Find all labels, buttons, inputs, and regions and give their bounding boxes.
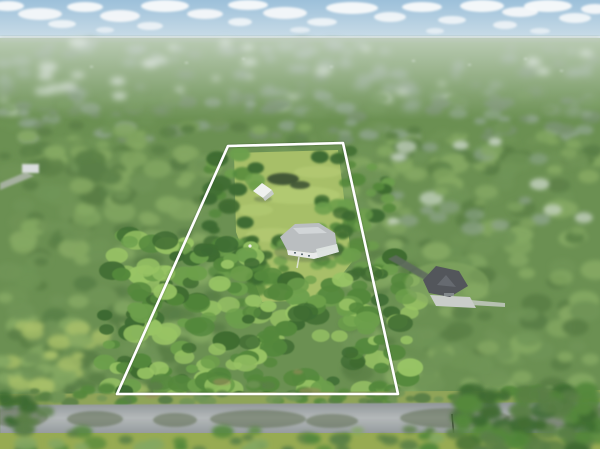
road-shadow xyxy=(306,414,358,428)
foliage-blob xyxy=(158,395,173,404)
cloud-puff xyxy=(137,22,163,30)
foliage-blob xyxy=(19,145,41,159)
horizon-haze xyxy=(0,36,600,120)
foliage-blob xyxy=(201,244,219,256)
foliage-blob xyxy=(25,321,43,332)
foliage-blob xyxy=(406,396,416,402)
foliage-blob xyxy=(44,145,66,159)
foliage-blob xyxy=(502,146,514,153)
foliage-blob xyxy=(547,178,570,193)
well-pad-dot xyxy=(248,244,251,247)
foliage-blob xyxy=(74,150,106,171)
foliage-blob xyxy=(496,390,511,400)
foliage-blob xyxy=(539,396,564,413)
foliage-blob xyxy=(91,239,111,252)
cloud-puff xyxy=(18,8,62,20)
foliage-blob xyxy=(352,281,368,292)
foliage-blob xyxy=(373,183,385,191)
foliage-blob xyxy=(97,310,112,321)
foliage-blob xyxy=(332,272,353,287)
foliage-blob xyxy=(357,322,375,335)
foliage-blob xyxy=(247,381,260,389)
foliage-blob xyxy=(7,302,35,320)
cloud-puff xyxy=(187,9,223,19)
foliage-blob xyxy=(407,126,421,134)
foliage-blob xyxy=(342,347,359,359)
foliage-blob xyxy=(247,162,264,174)
foliage-blob xyxy=(519,219,536,229)
foliage-blob xyxy=(474,199,486,206)
foliage-blob xyxy=(480,143,503,157)
foliage-blob xyxy=(381,194,395,204)
lawn-streak xyxy=(237,204,273,216)
foliage-blob xyxy=(119,436,133,445)
foliage-blob xyxy=(270,132,282,139)
foliage-blob xyxy=(434,187,449,196)
foliage-blob xyxy=(465,209,485,221)
foliage-blob xyxy=(439,201,460,214)
foliage-blob xyxy=(221,260,234,269)
foliage-blob xyxy=(329,433,350,446)
foliage-blob xyxy=(461,221,484,235)
foliage-blob xyxy=(562,319,589,336)
foliage-blob xyxy=(388,314,413,332)
foliage-blob xyxy=(506,431,530,448)
foliage-blob xyxy=(428,433,445,443)
foliage-blob xyxy=(266,395,282,405)
foliage-blob xyxy=(208,343,225,355)
foliage-blob xyxy=(331,330,348,342)
foliage-blob xyxy=(242,434,253,441)
foliage-blob xyxy=(371,294,389,307)
foliage-blob xyxy=(236,216,253,228)
foliage-blob xyxy=(141,213,161,226)
foliage-blob xyxy=(172,146,195,161)
foliage-blob xyxy=(48,335,72,349)
foliage-blob xyxy=(429,135,439,141)
foliage-blob xyxy=(477,341,499,355)
foliage-blob xyxy=(36,127,52,137)
cloud-puff xyxy=(307,18,337,26)
foliage-blob xyxy=(355,143,376,156)
foliage-blob xyxy=(544,204,562,215)
foliage-blob xyxy=(333,224,353,238)
foliage-blob xyxy=(127,282,151,299)
foliage-blob xyxy=(185,318,208,334)
house-window xyxy=(294,252,296,254)
foliage-blob xyxy=(298,124,312,132)
cloud-puff xyxy=(374,12,406,22)
foliage-blob xyxy=(403,425,418,434)
foliage-blob xyxy=(489,137,502,145)
foliage-blob xyxy=(252,125,268,135)
neighbor-garage-front xyxy=(444,293,454,296)
foliage-blob xyxy=(180,124,196,134)
foliage-blob xyxy=(367,163,378,170)
foliage-blob xyxy=(471,415,488,427)
lawn-streak xyxy=(294,166,342,178)
cloud-puff xyxy=(228,0,268,10)
foliage-blob xyxy=(494,123,512,134)
foliage-blob xyxy=(407,169,424,179)
foliage-blob xyxy=(569,341,586,352)
foliage-blob xyxy=(311,151,329,164)
foliage-blob xyxy=(180,171,196,181)
foliage-blob xyxy=(19,400,39,413)
foliage-blob xyxy=(67,430,79,437)
foliage-blob xyxy=(68,333,93,348)
foliage-blob xyxy=(186,266,207,281)
foliage-blob xyxy=(143,160,171,178)
foliage-blob xyxy=(99,324,114,335)
foliage-blob xyxy=(38,392,52,401)
dark-pond-patch-2 xyxy=(290,181,310,189)
foliage-blob xyxy=(121,236,138,248)
foliage-blob xyxy=(503,152,532,171)
foliage-blob xyxy=(4,416,15,423)
foliage-blob xyxy=(575,212,593,223)
foliage-blob xyxy=(127,302,145,315)
photo-canvas xyxy=(0,0,600,449)
foliage-blob xyxy=(148,382,163,391)
foliage-blob xyxy=(267,283,293,301)
foliage-blob xyxy=(547,138,559,145)
foliage-band xyxy=(450,382,600,449)
foliage-blob xyxy=(549,270,573,286)
foliage-blob xyxy=(230,266,253,282)
foliage-blob xyxy=(201,355,220,369)
foliage-blob xyxy=(304,434,319,443)
foliage-blob xyxy=(477,311,492,321)
foliage-blob xyxy=(450,234,469,246)
foliage-blob xyxy=(396,140,417,153)
foliage-blob xyxy=(342,211,357,221)
foliage-blob xyxy=(578,170,599,184)
foliage-blob xyxy=(24,353,42,364)
foliage-blob xyxy=(498,170,515,181)
foliage-blob xyxy=(484,128,495,134)
foliage-blob xyxy=(182,343,197,354)
foliage-blob xyxy=(35,184,61,201)
foliage-blob xyxy=(420,206,434,214)
foliage-blob xyxy=(400,336,412,345)
foliage-blob xyxy=(408,229,427,241)
cloud-puff xyxy=(493,21,517,29)
foliage-blob xyxy=(485,329,502,340)
foliage-blob xyxy=(149,362,169,376)
foliage-blob xyxy=(386,132,399,140)
foliage-blob xyxy=(234,355,258,372)
foliage-blob xyxy=(74,138,86,145)
foliage-blob xyxy=(34,257,49,266)
foliage-blob xyxy=(453,141,469,150)
foliage-blob xyxy=(209,276,231,292)
cloud-puff xyxy=(263,7,307,19)
foliage-blob xyxy=(125,135,148,149)
foliage-blob xyxy=(570,301,600,322)
cloud-puff xyxy=(524,0,572,12)
cloud-puff xyxy=(460,0,504,12)
foliage-blob xyxy=(388,223,407,234)
foliage-blob xyxy=(491,220,509,231)
foliage-blob xyxy=(96,141,109,149)
foliage-blob xyxy=(74,255,89,265)
cloud-puff xyxy=(228,18,252,26)
foliage-blob xyxy=(98,383,116,394)
foliage-blob xyxy=(366,189,376,196)
foliage-blob xyxy=(512,371,532,384)
foliage-blob xyxy=(345,120,357,127)
cloud-puff xyxy=(402,2,442,12)
foliage-blob xyxy=(446,321,473,339)
foliage-blob xyxy=(422,142,438,152)
foliage-blob xyxy=(529,153,548,164)
foliage-blob xyxy=(97,395,108,402)
foliage-blob xyxy=(368,120,389,132)
foliage-blob xyxy=(120,151,147,168)
foliage-blob xyxy=(422,242,451,261)
foliage-blob xyxy=(557,352,573,362)
foliage-blob xyxy=(414,393,431,403)
cloud-puff xyxy=(290,27,310,33)
foliage-blob xyxy=(114,190,129,200)
foliage-blob xyxy=(202,220,218,231)
foliage-blob xyxy=(432,168,455,182)
foliage-blob xyxy=(382,435,399,445)
foliage-blob xyxy=(112,268,131,281)
foliage-blob xyxy=(13,199,34,213)
foliage-blob xyxy=(6,122,20,130)
foliage-blob xyxy=(151,145,168,155)
foliage-blob xyxy=(36,220,54,232)
foliage-blob xyxy=(518,268,535,279)
foliage-blob xyxy=(262,382,275,390)
cloud-puff xyxy=(96,27,114,33)
foliage-blob xyxy=(372,381,387,390)
foliage-blob xyxy=(582,354,600,365)
foliage-blob xyxy=(230,437,243,445)
foliage-blob xyxy=(186,365,198,374)
foliage-blob xyxy=(574,402,592,415)
foliage-blob xyxy=(152,231,178,249)
foliage-blob xyxy=(159,127,177,138)
foliage-blob xyxy=(218,199,240,214)
house-window xyxy=(301,254,303,256)
foliage-blob xyxy=(479,368,510,388)
foliage-blob xyxy=(561,148,578,158)
foliage-blob xyxy=(575,431,593,444)
foliage-blob xyxy=(516,387,541,404)
foliage-blob xyxy=(230,122,248,133)
cloud-puff xyxy=(141,0,189,12)
foliage-blob xyxy=(28,417,40,425)
foliage-blob xyxy=(544,121,563,132)
foliage-blob xyxy=(330,153,346,164)
foliage-blob xyxy=(383,203,397,213)
foliage-blob xyxy=(390,153,405,162)
foliage-blob xyxy=(245,295,262,307)
foliage-blob xyxy=(106,248,128,264)
foliage-blob xyxy=(519,197,532,205)
foliage-blob xyxy=(571,226,585,235)
foliage-blob xyxy=(433,396,443,402)
foliage-blob xyxy=(58,356,83,371)
cloud-puff xyxy=(100,10,140,22)
foliage-blob xyxy=(16,414,27,421)
foliage-blob xyxy=(425,427,435,433)
foliage-blob xyxy=(547,165,562,175)
cloud-puff xyxy=(326,2,378,14)
foliage-blob xyxy=(328,127,339,133)
foliage-blob xyxy=(556,426,575,439)
foliage-blob xyxy=(60,222,91,242)
foliage-blob xyxy=(530,178,550,190)
foliage-blob xyxy=(509,254,529,267)
foliage-blob xyxy=(68,295,89,308)
dirt-patch xyxy=(293,370,303,375)
foliage-blob xyxy=(373,395,385,402)
foliage-blob xyxy=(73,390,88,399)
foliage-blob xyxy=(516,329,543,346)
cloud-puff xyxy=(438,16,466,24)
road-shadow xyxy=(67,411,123,427)
foliage-blob xyxy=(44,351,58,360)
foliage-blob xyxy=(17,131,37,143)
cloud-puff xyxy=(426,28,444,34)
foliage-blob xyxy=(209,209,222,218)
foliage-blob xyxy=(485,165,500,175)
foliage-blob xyxy=(342,248,362,262)
foliage-blob xyxy=(470,239,496,256)
aerial-property-photo xyxy=(0,0,600,449)
foliage-blob xyxy=(68,121,84,131)
foliage-blob xyxy=(86,286,118,307)
cloud-puff xyxy=(559,13,591,23)
foliage-blob xyxy=(239,335,261,350)
dirt-patch xyxy=(213,379,231,386)
foliage-blob xyxy=(286,134,310,148)
foliage-blob xyxy=(293,303,318,321)
foliage-blob xyxy=(312,329,330,342)
foliage-blob xyxy=(98,169,122,185)
foliage-blob xyxy=(242,315,255,324)
foliage-blob xyxy=(484,434,505,449)
foliage-blob xyxy=(254,271,268,281)
foliage-blob xyxy=(212,425,234,438)
foliage-blob xyxy=(478,390,498,404)
far-left-structure xyxy=(22,164,39,173)
road-shadow xyxy=(153,413,197,427)
foliage-blob xyxy=(453,414,473,428)
foliage-blob xyxy=(349,302,364,313)
foliage-blob xyxy=(229,147,250,161)
foliage-blob xyxy=(475,185,498,199)
foliage-blob xyxy=(48,439,65,449)
foliage-blob xyxy=(16,273,41,289)
foliage-blob xyxy=(398,208,412,216)
foliage-blob xyxy=(566,140,581,149)
foliage-blob xyxy=(137,265,154,277)
foliage-blob xyxy=(11,238,35,254)
cloud-puff xyxy=(67,2,103,12)
foliage-blob xyxy=(519,308,539,321)
foliage-blob xyxy=(23,121,35,128)
cloud-puff xyxy=(530,28,550,34)
foliage-blob xyxy=(248,427,262,435)
cloud-puff xyxy=(48,20,76,28)
foliage-blob xyxy=(50,295,67,306)
foliage-blob xyxy=(70,178,94,194)
foliage-blob xyxy=(113,123,137,137)
foliage-blob xyxy=(351,427,364,435)
foliage-blob xyxy=(103,340,115,349)
foliage-blob xyxy=(156,323,181,341)
foliage-blob xyxy=(260,301,276,312)
foliage-blob xyxy=(397,358,423,376)
foliage-blob xyxy=(101,126,114,134)
house-window xyxy=(308,255,310,257)
foliage-blob xyxy=(374,363,389,374)
